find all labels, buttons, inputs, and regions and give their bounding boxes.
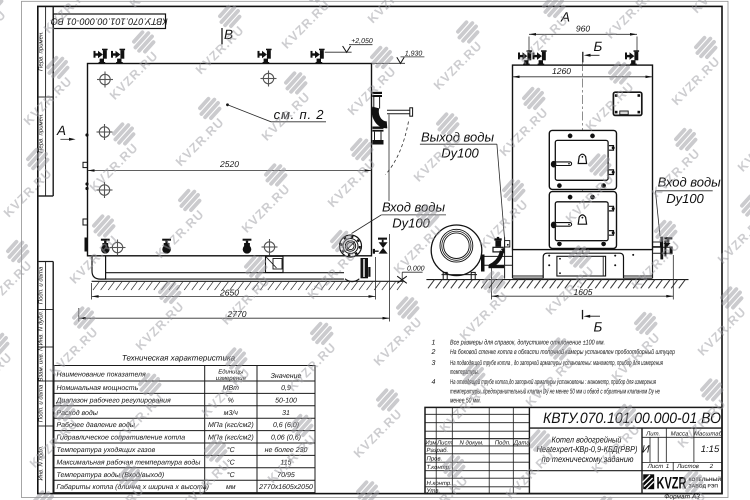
svg-text:Пров.: Пров.	[427, 456, 443, 463]
svg-text:960: 960	[576, 23, 590, 33]
svg-text:Номинальная мощность: Номинальная мощность	[57, 385, 139, 392]
svg-text:Температура воды (Вход/выход): Температура воды (Вход/выход)	[57, 471, 165, 479]
svg-text:°С: °С	[227, 447, 236, 454]
svg-text:Изм: Изм	[425, 439, 436, 446]
svg-text:Наименование показателя: Наименование показателя	[57, 371, 147, 378]
svg-text:Дата: Дата	[513, 439, 530, 446]
svg-text:2: 2	[709, 463, 714, 470]
svg-text:МПа (кгс/см2): МПа (кгс/см2)	[208, 421, 254, 429]
svg-text:м3/ч: м3/ч	[224, 409, 239, 417]
svg-text:Подп. и дата: Подп. и дата	[37, 266, 44, 304]
svg-text:Подп. и дата: Подп. и дата	[37, 384, 44, 422]
svg-text:N докум.: N докум.	[460, 439, 484, 446]
svg-text:Перв. примен.: Перв. примен.	[37, 31, 44, 71]
svg-text:Техническая характеристика: Техническая характеристика	[122, 354, 236, 363]
svg-text:Б: Б	[594, 39, 603, 54]
svg-text:31: 31	[282, 410, 290, 417]
svg-text:2650: 2650	[219, 287, 239, 297]
svg-text:Разраб.: Разраб.	[427, 447, 449, 454]
svg-text:1260: 1260	[552, 66, 571, 76]
svg-text:3: 3	[432, 360, 436, 367]
svg-text:1: 1	[666, 463, 669, 470]
svg-text:Все размеры для справок, допус: Все размеры для справок, допустимое откл…	[450, 339, 605, 347]
svg-text:1: 1	[432, 340, 436, 347]
svg-text:Температура уходящих газов: Температура уходящих газов	[57, 446, 156, 454]
svg-text:Б: Б	[594, 320, 603, 335]
svg-text:Лит.: Лит.	[645, 430, 660, 437]
svg-text:А: А	[56, 123, 66, 138]
svg-text:Dy100: Dy100	[666, 191, 704, 206]
svg-text:Взам. инв. N: Взам. инв. N	[37, 346, 44, 382]
svg-text:+2,050: +2,050	[351, 38, 373, 45]
svg-text:мм: мм	[226, 484, 236, 491]
svg-text:Лист: Лист	[647, 463, 663, 470]
svg-text:1,930: 1,930	[405, 50, 423, 57]
svg-text:50-100: 50-100	[275, 397, 297, 404]
svg-text:4: 4	[432, 379, 436, 386]
svg-text:°С: °С	[227, 472, 236, 479]
svg-text:1:15: 1:15	[701, 444, 720, 455]
svg-text:2520: 2520	[219, 159, 239, 169]
svg-text:И: И	[642, 444, 650, 456]
svg-text:Инв. N дубл.: Инв. N дубл.	[37, 311, 44, 346]
svg-text:2770х1605х2050: 2770х1605х2050	[258, 484, 313, 491]
svg-text:2: 2	[431, 349, 436, 356]
svg-text:Подп.: Подп.	[495, 439, 511, 446]
svg-text:Лист: Лист	[436, 439, 452, 446]
svg-text:Листов: Листов	[676, 463, 699, 470]
svg-text:Утв.: Утв.	[426, 488, 441, 495]
